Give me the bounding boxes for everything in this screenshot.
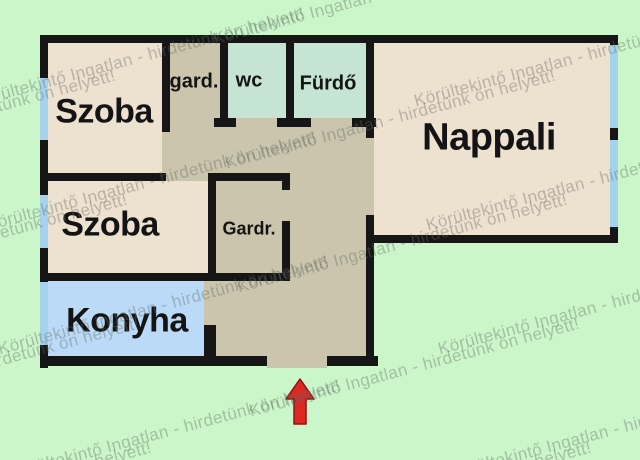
floorplan-canvas: Szoba gard. wc Fürdő Nappali Szoba Gardr… bbox=[0, 0, 640, 460]
wall bbox=[286, 43, 294, 118]
wall bbox=[40, 173, 166, 181]
wall bbox=[352, 118, 376, 127]
wall bbox=[220, 43, 228, 125]
window-marker bbox=[610, 45, 618, 128]
entrance-arrow bbox=[283, 377, 317, 427]
wall bbox=[40, 273, 216, 281]
watermark-text: Körültekintő Ingatlan - hirdetünk ön hel… bbox=[0, 438, 154, 460]
room-label-szoba-1: Szoba bbox=[55, 93, 153, 132]
window-marker bbox=[40, 282, 48, 345]
watermark-text: Körültekintő Ingatlan - hirdetünk ön hel… bbox=[436, 252, 640, 360]
room-label-szoba-2: Szoba bbox=[61, 206, 159, 245]
entrance-opening bbox=[267, 356, 327, 368]
wall bbox=[204, 325, 216, 366]
window-marker bbox=[610, 140, 618, 227]
wall bbox=[40, 140, 48, 195]
wall bbox=[277, 118, 311, 127]
wall bbox=[282, 221, 290, 281]
room-label-wc: wc bbox=[236, 70, 263, 93]
wall bbox=[214, 118, 236, 127]
wall bbox=[282, 173, 290, 190]
watermark-text: Körültekintő Ingatlan - hirdetünk ön hel… bbox=[448, 376, 640, 460]
wall bbox=[610, 128, 618, 140]
window-marker bbox=[40, 195, 48, 248]
room-label-furdo: Fürdő bbox=[300, 73, 357, 96]
room-label-nappali: Nappali bbox=[422, 117, 556, 160]
wall bbox=[208, 173, 290, 181]
window-marker bbox=[40, 78, 48, 140]
wall bbox=[366, 215, 374, 366]
wall bbox=[610, 35, 618, 45]
door-gap-konyha bbox=[204, 281, 216, 325]
wall bbox=[40, 35, 618, 43]
hallway bbox=[216, 236, 370, 356]
room-label-gardr: Gardr. bbox=[222, 219, 275, 240]
wall bbox=[366, 235, 618, 243]
wall bbox=[40, 35, 48, 78]
wall bbox=[40, 356, 267, 366]
wall bbox=[208, 173, 216, 281]
room-label-konyha: Konyha bbox=[66, 302, 188, 341]
watermark-text: Körültekintő Ingatlan - hirdetünk ön hel… bbox=[259, 438, 594, 460]
wall bbox=[208, 273, 290, 281]
hallway bbox=[162, 132, 170, 173]
room-label-gard: gard. bbox=[170, 71, 219, 94]
